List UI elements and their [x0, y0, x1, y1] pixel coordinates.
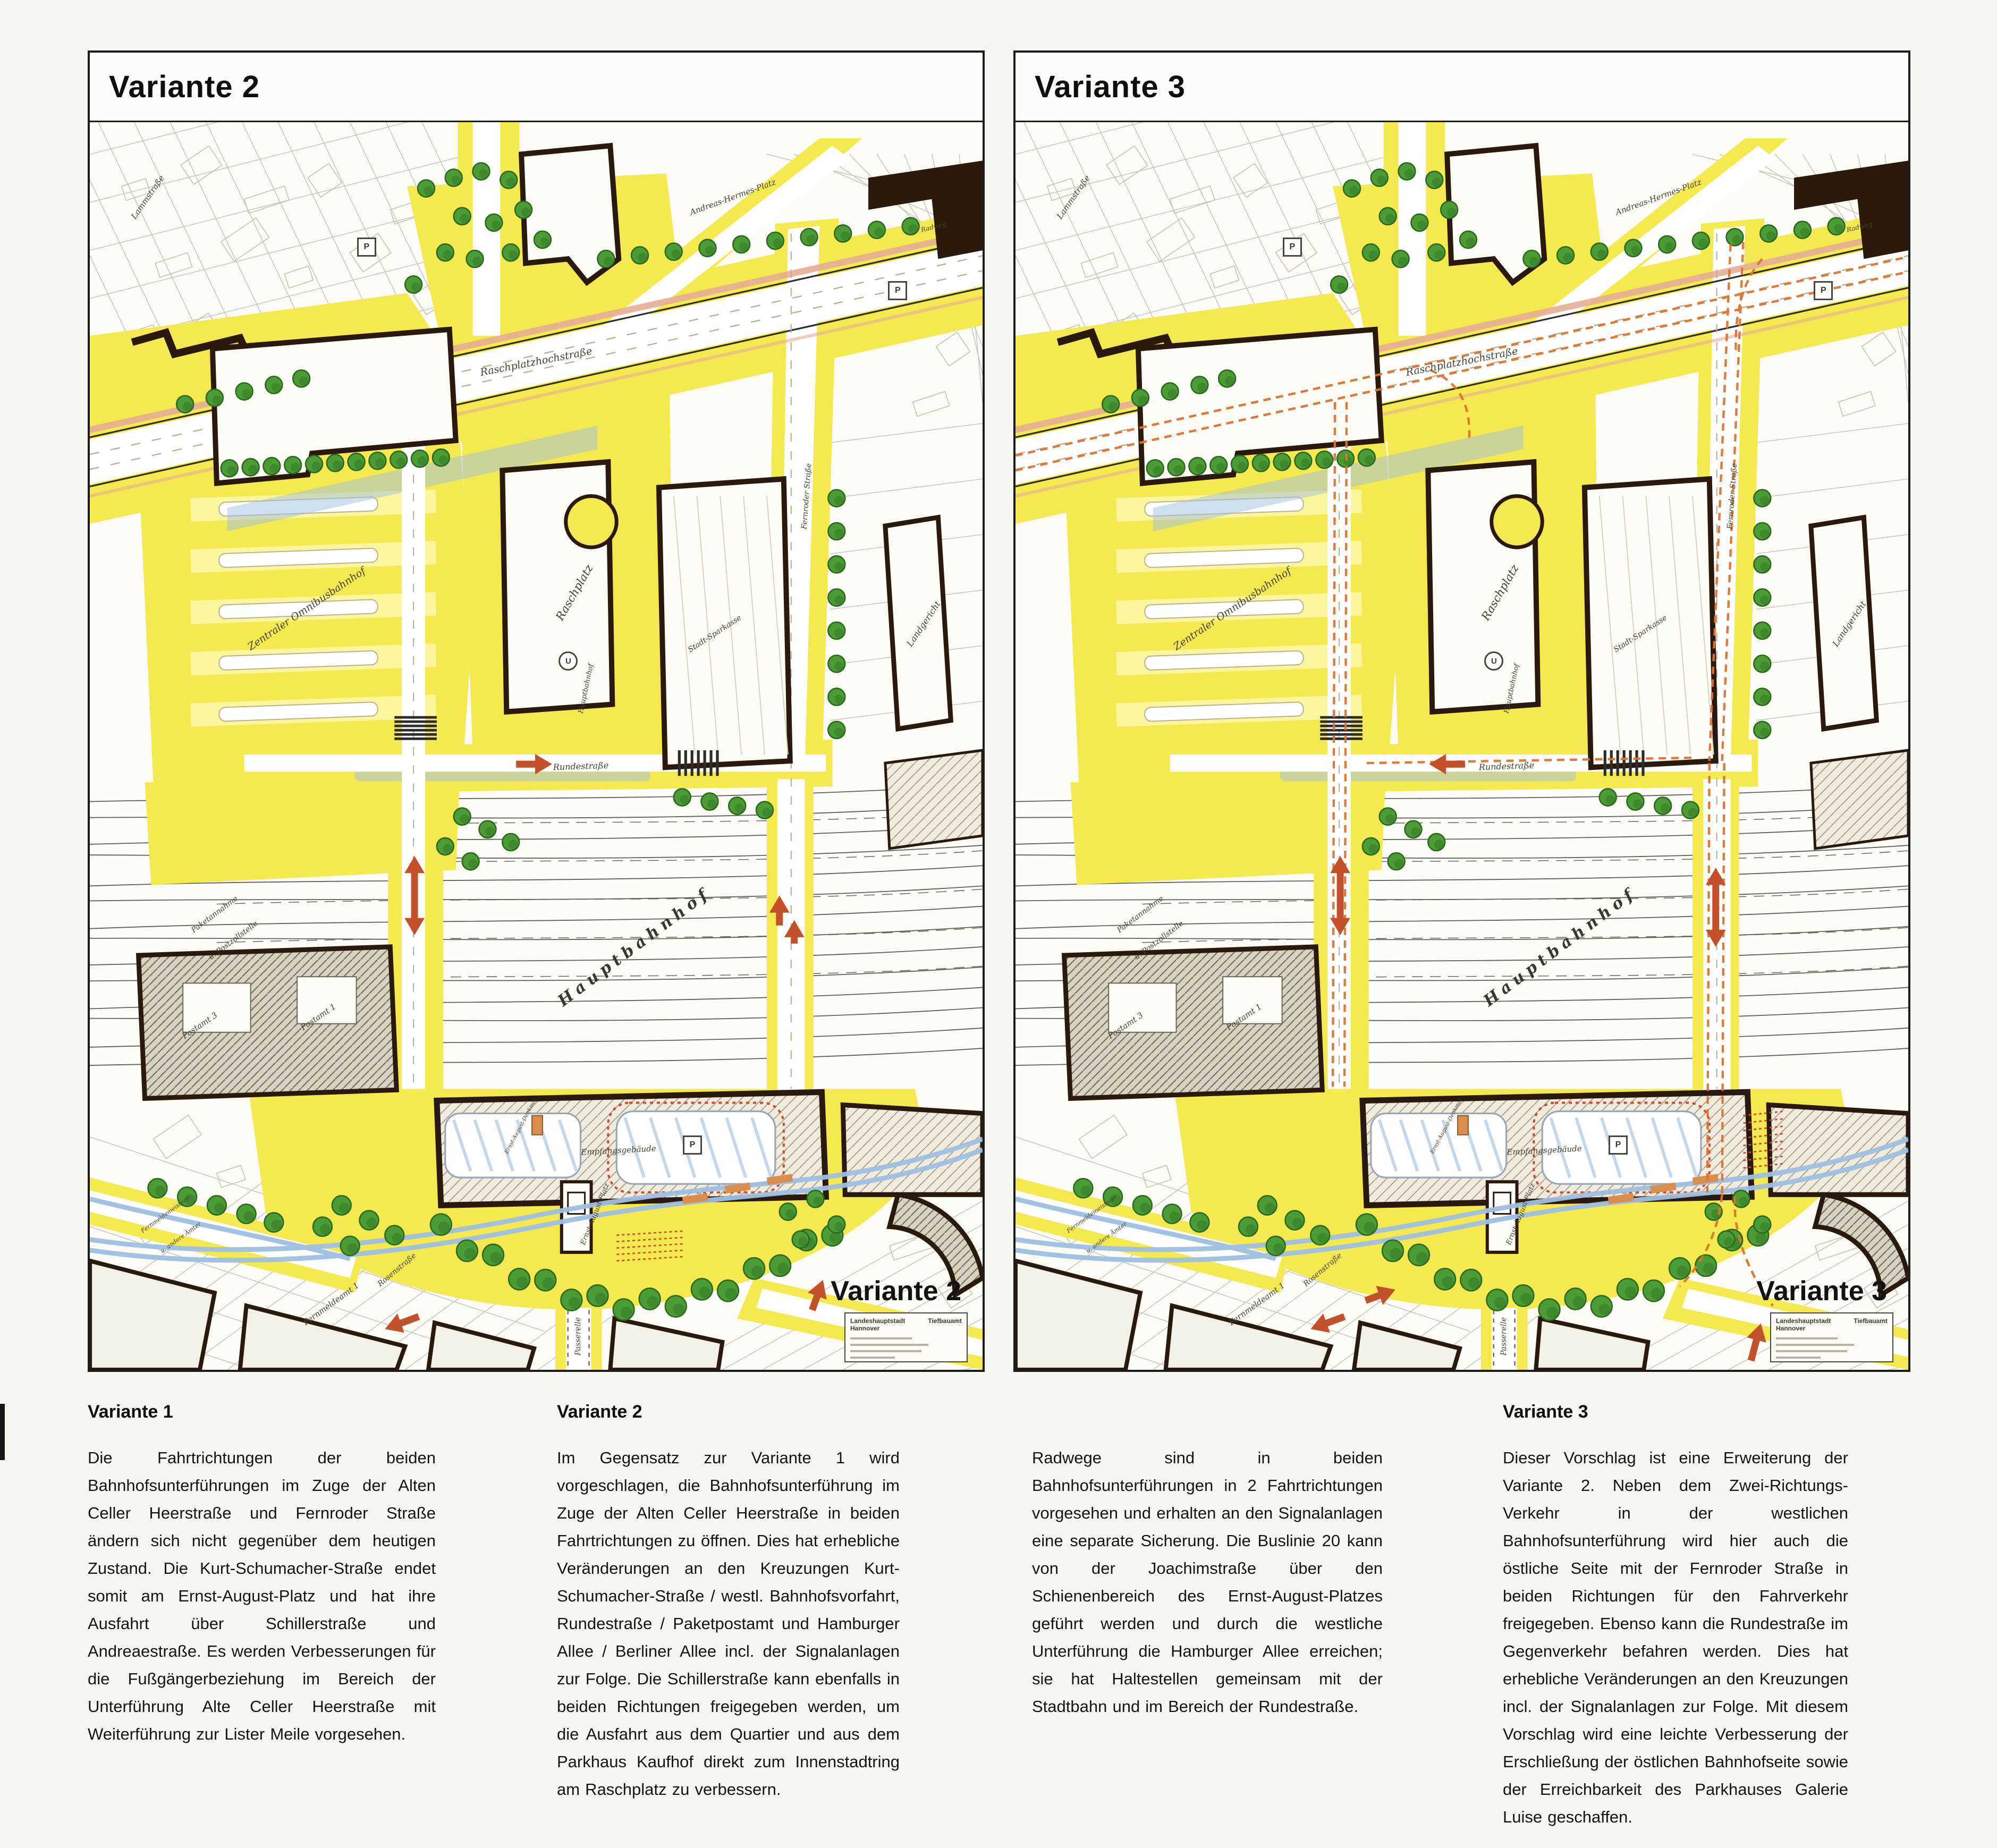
map-corner-label: Variante 2: [831, 1275, 961, 1307]
column-heading: Variante 2: [557, 1402, 900, 1444]
parking-symbol: P: [1609, 1135, 1628, 1155]
title-block-line: [1776, 1344, 1854, 1346]
parking-symbol: P: [888, 281, 907, 300]
map-label: Rundestraße: [553, 760, 609, 772]
ubahn-symbol: U: [559, 651, 578, 671]
column-body: Im Gegensatz zur Variante 1 wird vorgesc…: [557, 1444, 900, 1803]
title-block-line: [850, 1337, 912, 1340]
scanned-brochure-page: Variante 2 LammstraßeAndreas-Hermes-Plat…: [0, 0, 1997, 1848]
title-block-office: Tiefbauamt: [928, 1317, 962, 1332]
title-block: Landeshauptstadt Hannover Tiefbauamt: [844, 1312, 968, 1362]
title-block-authority: Landeshauptstadt Hannover: [850, 1317, 928, 1332]
title-block: Landeshauptstadt Hannover Tiefbauamt: [1770, 1312, 1893, 1362]
city-plan-drawing: [90, 122, 983, 1370]
text-column-variante-1: Variante 1 Die Fahrtrichtungen der beide…: [88, 1402, 436, 1748]
parking-symbol: P: [1814, 281, 1833, 300]
column-body: Dieser Vorschlag ist eine Erweiterung de…: [1503, 1444, 1848, 1831]
title-block-line: [1776, 1357, 1821, 1359]
scan-edge-mark: [0, 1404, 5, 1460]
title-block-line: [850, 1357, 895, 1359]
text-column-variante-3: Variante 3 Dieser Vorschlag ist eine Erw…: [1503, 1402, 1848, 1831]
ubahn-symbol: U: [1484, 651, 1503, 671]
map-panel-variante-2: Variante 2 LammstraßeAndreas-Hermes-Plat…: [88, 50, 985, 1372]
panel-title: Variante 3: [1016, 53, 1908, 122]
title-block-line: [1776, 1337, 1838, 1340]
column-body: Die Fahrtrichtungen der beiden Bahnhofsu…: [88, 1444, 436, 1748]
parking-symbol: P: [1283, 238, 1302, 257]
column-heading: [1032, 1402, 1383, 1444]
map-variante-2: LammstraßeAndreas-Hermes-PlatzRadwegRasc…: [90, 122, 983, 1370]
title-block-line: [1776, 1350, 1847, 1352]
map-label: Passerelle: [574, 1317, 582, 1355]
title-block-line: [850, 1344, 928, 1346]
map-panel-variante-3: Variante 3 LammstraßeAndreas-Hermes-Plat…: [1013, 50, 1910, 1372]
text-column-variante-2: Variante 2 Im Gegensatz zur Variante 1 w…: [557, 1402, 900, 1803]
map-variante-3: LammstraßeAndreas-Hermes-PlatzRadwegRasc…: [1016, 122, 1908, 1370]
panel-title: Variante 2: [90, 53, 983, 122]
map-label: Rundestraße: [1479, 760, 1535, 772]
column-heading: Variante 1: [88, 1402, 436, 1444]
column-body: Radwege sind in beiden Bahnhofsunterführ…: [1032, 1444, 1383, 1720]
parking-symbol: P: [683, 1135, 702, 1155]
column-heading: Variante 3: [1503, 1402, 1848, 1444]
map-label: Passerelle: [1500, 1317, 1508, 1355]
title-block-line: [850, 1350, 921, 1352]
text-column-continuation: Radwege sind in beiden Bahnhofsunterführ…: [1032, 1402, 1383, 1720]
parking-symbol: P: [357, 238, 376, 257]
city-plan-drawing: [1016, 122, 1908, 1370]
map-corner-label: Variante 3: [1756, 1275, 1887, 1307]
title-block-office: Tiefbauamt: [1854, 1317, 1888, 1332]
title-block-authority: Landeshauptstadt Hannover: [1776, 1317, 1854, 1332]
